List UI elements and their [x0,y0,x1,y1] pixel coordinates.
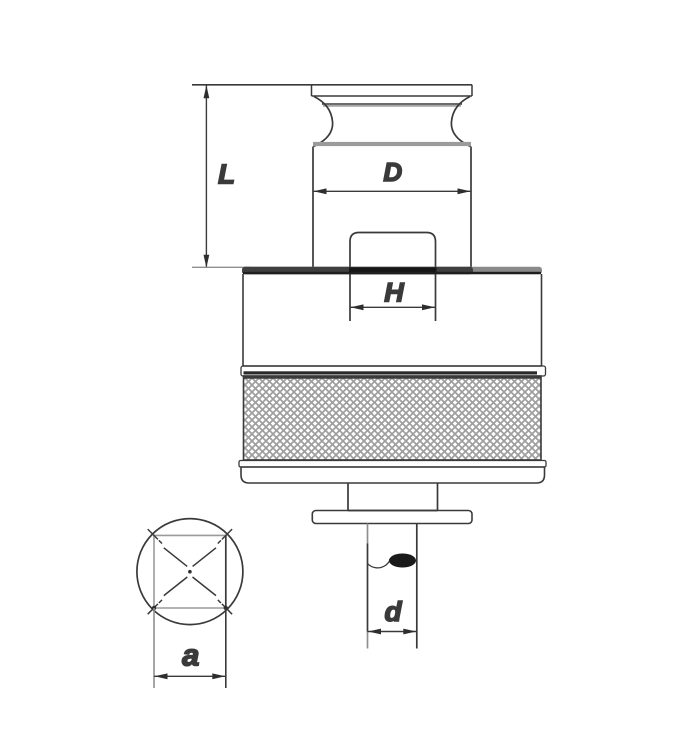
svg-text:d: d [384,596,402,627]
svg-text:a: a [182,638,199,673]
svg-text:D: D [383,157,402,187]
svg-text:L: L [218,159,235,190]
svg-text:H: H [384,278,404,308]
